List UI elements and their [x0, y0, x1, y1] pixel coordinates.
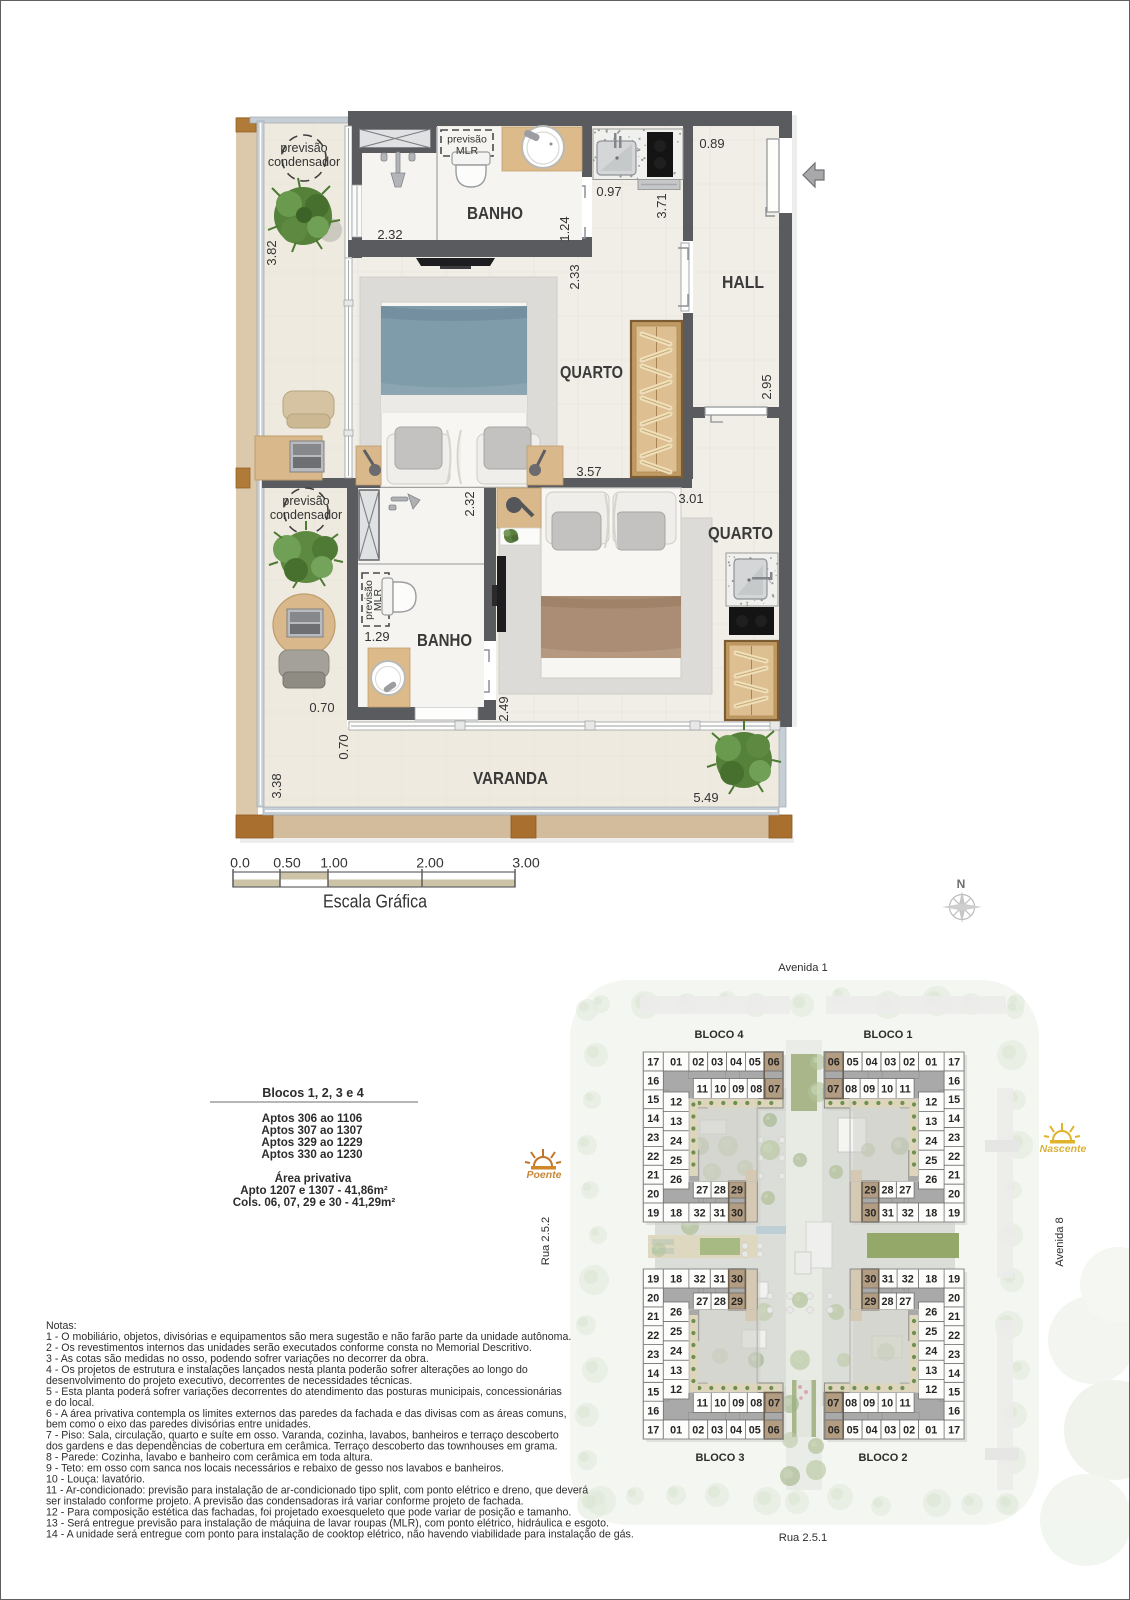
svg-text:19: 19: [647, 1207, 659, 1219]
svg-text:02: 02: [903, 1056, 915, 1068]
svg-text:Rua 2.5.2: Rua 2.5.2: [540, 1217, 552, 1266]
svg-text:13: 13: [925, 1116, 937, 1128]
svg-text:06: 06: [768, 1424, 780, 1436]
svg-text:2.33: 2.33: [567, 264, 582, 289]
svg-text:3.01: 3.01: [678, 491, 703, 506]
svg-text:21: 21: [948, 1311, 960, 1323]
svg-text:27: 27: [696, 1185, 708, 1197]
svg-text:28: 28: [714, 1296, 726, 1308]
svg-text:10: 10: [714, 1397, 726, 1409]
svg-text:N: N: [957, 877, 966, 891]
svg-text:25: 25: [670, 1155, 682, 1167]
svg-text:08: 08: [845, 1397, 857, 1409]
svg-text:3.57: 3.57: [576, 464, 601, 479]
svg-text:14: 14: [948, 1368, 960, 1380]
svg-text:22: 22: [647, 1151, 659, 1163]
svg-text:05: 05: [847, 1056, 859, 1068]
svg-text:26: 26: [925, 1174, 937, 1186]
svg-text:Avenida 8: Avenida 8: [1054, 1217, 1066, 1267]
svg-text:0.70: 0.70: [336, 734, 351, 759]
svg-text:20: 20: [647, 1292, 659, 1304]
svg-text:31: 31: [882, 1207, 894, 1219]
svg-text:30: 30: [731, 1207, 743, 1219]
svg-text:1.00: 1.00: [320, 856, 348, 872]
svg-text:28: 28: [714, 1185, 726, 1197]
svg-text:Avenida 1: Avenida 1: [778, 962, 828, 974]
svg-text:07: 07: [827, 1083, 839, 1095]
svg-text:27: 27: [899, 1296, 911, 1308]
svg-text:25: 25: [925, 1155, 937, 1167]
svg-text:02: 02: [692, 1056, 704, 1068]
svg-text:previsão: previsão: [447, 134, 487, 146]
svg-text:16: 16: [647, 1406, 659, 1418]
svg-text:BLOCO 2: BLOCO 2: [859, 1452, 908, 1464]
svg-text:09: 09: [863, 1397, 875, 1409]
svg-text:12: 12: [925, 1384, 937, 1396]
svg-text:20: 20: [647, 1189, 659, 1201]
svg-text:13: 13: [670, 1116, 682, 1128]
svg-text:09: 09: [863, 1083, 875, 1095]
svg-text:25: 25: [925, 1326, 937, 1338]
svg-text:18: 18: [925, 1207, 937, 1219]
svg-text:14: 14: [647, 1113, 659, 1125]
svg-text:16: 16: [948, 1075, 960, 1087]
svg-text:3.82: 3.82: [264, 240, 279, 265]
svg-text:10: 10: [714, 1083, 726, 1095]
svg-text:29: 29: [864, 1296, 876, 1308]
svg-text:18: 18: [670, 1273, 682, 1285]
svg-text:15: 15: [647, 1387, 659, 1399]
svg-text:3.00: 3.00: [512, 856, 540, 872]
svg-text:06: 06: [768, 1056, 780, 1068]
svg-text:12: 12: [670, 1384, 682, 1396]
svg-text:29: 29: [864, 1185, 876, 1197]
svg-text:08: 08: [750, 1397, 762, 1409]
svg-text:26: 26: [670, 1174, 682, 1186]
svg-text:15: 15: [948, 1094, 960, 1106]
svg-text:13: 13: [670, 1365, 682, 1377]
svg-text:27: 27: [696, 1296, 708, 1308]
svg-text:Aptos 330 ao 1230: Aptos 330 ao 1230: [261, 1148, 362, 1161]
svg-text:10: 10: [881, 1083, 893, 1095]
svg-text:32: 32: [902, 1207, 914, 1219]
svg-text:29: 29: [731, 1185, 743, 1197]
svg-text:2.00: 2.00: [416, 856, 444, 872]
svg-text:31: 31: [882, 1273, 894, 1285]
svg-text:03: 03: [711, 1056, 723, 1068]
svg-text:BLOCO 1: BLOCO 1: [864, 1029, 913, 1041]
svg-text:5 - Esta planta poderá sofrer: 5 - Esta planta poderá sofrer variações …: [46, 1386, 562, 1398]
svg-text:26: 26: [925, 1307, 937, 1319]
svg-text:2.32: 2.32: [462, 491, 477, 516]
svg-text:03: 03: [884, 1424, 896, 1436]
svg-text:02: 02: [692, 1424, 704, 1436]
svg-text:32: 32: [694, 1273, 706, 1285]
svg-text:1.29: 1.29: [364, 629, 389, 644]
svg-text:24: 24: [670, 1135, 682, 1147]
svg-text:25: 25: [670, 1326, 682, 1338]
svg-text:22: 22: [948, 1151, 960, 1163]
svg-text:05: 05: [847, 1424, 859, 1436]
svg-text:04: 04: [865, 1424, 877, 1436]
svg-text:Poente: Poente: [526, 1169, 561, 1181]
svg-text:31: 31: [713, 1207, 725, 1219]
svg-text:12: 12: [670, 1097, 682, 1109]
svg-text:20: 20: [948, 1292, 960, 1304]
svg-text:14: 14: [948, 1113, 960, 1125]
svg-text:19: 19: [948, 1207, 960, 1219]
svg-text:18: 18: [670, 1207, 682, 1219]
svg-text:HALL: HALL: [722, 272, 764, 292]
svg-text:06: 06: [828, 1424, 840, 1436]
svg-text:11: 11: [697, 1397, 708, 1409]
svg-text:2.32: 2.32: [377, 227, 402, 242]
svg-text:01: 01: [925, 1424, 937, 1436]
svg-text:Rua 2.5.1: Rua 2.5.1: [779, 1532, 828, 1544]
svg-text:0.97: 0.97: [596, 184, 621, 199]
svg-text:MLR: MLR: [456, 145, 479, 157]
svg-text:BLOCO 3: BLOCO 3: [696, 1452, 745, 1464]
svg-text:14: 14: [647, 1368, 659, 1380]
svg-text:04: 04: [865, 1056, 877, 1068]
svg-text:15: 15: [647, 1094, 659, 1106]
svg-text:20: 20: [948, 1189, 960, 1201]
svg-text:05: 05: [749, 1424, 761, 1436]
svg-text:condensador: condensador: [270, 508, 342, 522]
svg-text:30: 30: [864, 1207, 876, 1219]
svg-text:Nascente: Nascente: [1040, 1143, 1087, 1155]
svg-text:16: 16: [647, 1075, 659, 1087]
svg-text:23: 23: [948, 1349, 960, 1361]
svg-text:28: 28: [881, 1185, 893, 1197]
svg-text:23: 23: [647, 1132, 659, 1144]
svg-text:12: 12: [925, 1097, 937, 1109]
svg-text:QUARTO: QUARTO: [560, 362, 623, 382]
svg-text:08: 08: [845, 1083, 857, 1095]
svg-text:07: 07: [768, 1083, 780, 1095]
svg-text:04: 04: [730, 1424, 742, 1436]
svg-text:05: 05: [749, 1056, 761, 1068]
svg-text:32: 32: [902, 1273, 914, 1285]
svg-text:28: 28: [881, 1296, 893, 1308]
svg-text:27: 27: [899, 1185, 911, 1197]
svg-text:5.49: 5.49: [693, 790, 718, 805]
svg-text:22: 22: [948, 1330, 960, 1342]
svg-text:BLOCO 4: BLOCO 4: [695, 1029, 745, 1041]
svg-text:0.89: 0.89: [699, 136, 724, 151]
svg-text:30: 30: [731, 1273, 743, 1285]
svg-text:15: 15: [948, 1387, 960, 1399]
svg-text:21: 21: [647, 1311, 659, 1323]
svg-text:3.38: 3.38: [269, 773, 284, 798]
svg-text:QUARTO: QUARTO: [708, 523, 773, 543]
svg-text:14 - A unidade será entregue c: 14 - A unidade será entregue com ponto p…: [46, 1528, 634, 1540]
svg-text:08: 08: [750, 1083, 762, 1095]
svg-text:17: 17: [948, 1056, 960, 1068]
svg-text:06: 06: [828, 1056, 840, 1068]
svg-text:30: 30: [864, 1273, 876, 1285]
svg-text:19: 19: [647, 1273, 659, 1285]
svg-text:09: 09: [732, 1397, 744, 1409]
svg-text:17: 17: [647, 1056, 659, 1068]
svg-text:21: 21: [948, 1170, 960, 1182]
svg-text:24: 24: [925, 1345, 937, 1357]
svg-text:Blocos 1, 2, 3 e 4: Blocos 1, 2, 3 e 4: [262, 1086, 364, 1100]
svg-text:01: 01: [670, 1424, 682, 1436]
svg-text:03: 03: [884, 1056, 896, 1068]
svg-text:04: 04: [730, 1056, 742, 1068]
svg-text:01: 01: [670, 1056, 682, 1068]
svg-text:2.49: 2.49: [496, 696, 511, 721]
svg-text:09: 09: [732, 1083, 744, 1095]
svg-text:31: 31: [713, 1273, 725, 1285]
svg-text:3.71: 3.71: [654, 193, 669, 218]
svg-text:Escala Gráfica: Escala Gráfica: [323, 892, 428, 912]
svg-text:0.50: 0.50: [273, 856, 301, 872]
svg-text:24: 24: [670, 1345, 682, 1357]
svg-text:2.95: 2.95: [759, 374, 774, 399]
svg-text:29: 29: [731, 1296, 743, 1308]
svg-text:0.70: 0.70: [309, 700, 334, 715]
svg-text:24: 24: [925, 1135, 937, 1147]
svg-text:16: 16: [948, 1406, 960, 1418]
svg-text:1.24: 1.24: [557, 216, 572, 241]
svg-text:previsão: previsão: [282, 494, 329, 508]
svg-text:VARANDA: VARANDA: [473, 768, 548, 788]
svg-text:10: 10: [881, 1397, 893, 1409]
svg-text:19: 19: [948, 1273, 960, 1285]
svg-text:21: 21: [647, 1170, 659, 1182]
svg-text:03: 03: [711, 1424, 723, 1436]
svg-text:32: 32: [694, 1207, 706, 1219]
svg-text:11: 11: [697, 1083, 708, 1095]
svg-text:26: 26: [670, 1307, 682, 1319]
svg-text:previsão: previsão: [280, 141, 327, 155]
svg-text:BANHO: BANHO: [417, 630, 472, 650]
svg-text:07: 07: [768, 1397, 780, 1409]
svg-text:02: 02: [903, 1424, 915, 1436]
svg-text:22: 22: [647, 1330, 659, 1342]
svg-text:13: 13: [925, 1365, 937, 1377]
svg-text:17: 17: [647, 1424, 659, 1436]
svg-text:07: 07: [827, 1397, 839, 1409]
svg-text:17: 17: [948, 1424, 960, 1436]
svg-text:01: 01: [925, 1056, 937, 1068]
svg-text:23: 23: [647, 1349, 659, 1361]
svg-text:23: 23: [948, 1132, 960, 1144]
svg-text:BANHO: BANHO: [467, 203, 523, 223]
svg-text:11: 11: [899, 1397, 910, 1409]
svg-text:condensador: condensador: [268, 155, 340, 169]
svg-text:11: 11: [899, 1083, 910, 1095]
svg-text:Cols. 06, 07, 29 e 30 - 41,29m: Cols. 06, 07, 29 e 30 - 41,29m²: [233, 1196, 396, 1209]
svg-text:18: 18: [925, 1273, 937, 1285]
